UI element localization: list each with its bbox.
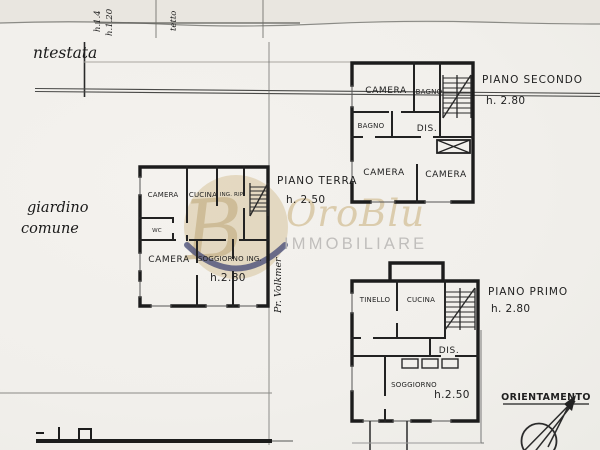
top-note-2: h.1.20: [105, 8, 115, 36]
fixture-box: [402, 359, 418, 368]
room-label-dis: DIS.: [417, 124, 438, 134]
ntestata-note: ntestata: [33, 44, 97, 62]
room-label-camera: CAMERA: [425, 170, 467, 180]
piano-secondo-plan: CAMERA BAGNO BAGNO DIS. CAMERA CAMERA PI…: [352, 63, 583, 202]
room-height-note: h.2.80: [210, 272, 246, 284]
fixture-box: [422, 359, 438, 368]
room-label-bagno: BAGNO: [416, 88, 443, 96]
room-label-soggiorno: SOGGIORNO ING.: [198, 255, 262, 263]
floor-height-piano-terra: h. 2.50: [286, 194, 326, 206]
giardino-note-line2: comune: [21, 221, 79, 237]
floor-height-piano-secondo: h. 2.80: [486, 95, 526, 107]
piano-secondo-shaft-icon: [437, 140, 470, 153]
piano-secondo-stairs-icon: [443, 75, 471, 118]
piano-primo-plan: TINELLO CUCINA DIS. SOGGIORNO h.2.50 PIA…: [352, 263, 568, 450]
room-label-wc: WC: [152, 228, 162, 234]
room-label-cucina: CUCINA: [189, 191, 217, 199]
room-label-camera: CAMERA: [363, 168, 405, 178]
floor-title-piano-primo: PIANO PRIMO: [488, 286, 568, 298]
orientation-compass: ORIENTAMENTO: [501, 392, 591, 450]
bottom-wall-stubs: [36, 427, 59, 441]
giardino-note-line1: giardino: [27, 200, 89, 216]
room-label-bagno: BAGNO: [358, 122, 385, 130]
scan-top-band: [0, 0, 600, 23]
piano-primo-balcony-lines: [370, 421, 407, 450]
fixture-box: [442, 359, 458, 368]
room-label-tinello: TINELLO: [359, 296, 391, 304]
floor-title-piano-secondo: PIANO SECONDO: [482, 74, 583, 86]
room-height-note: h.2.50: [434, 389, 470, 401]
top-note-1: h.1.4: [93, 10, 103, 32]
room-label-soggiorno: SOGGIORNO: [391, 381, 437, 389]
room-label-dis: DIS.: [439, 346, 460, 356]
piano-primo-stairs-icon: [445, 288, 475, 330]
top-note-3: tetto: [169, 11, 179, 31]
room-label-camera: CAMERA: [365, 86, 407, 96]
shaft-cross: [437, 140, 470, 153]
room-label-camera: CAMERA: [148, 191, 179, 199]
piano-secondo-partitions: [352, 63, 473, 202]
piano-secondo-exterior-walls: [352, 63, 473, 202]
piano-primo-fixtures: [402, 359, 458, 368]
floor-title-piano-terra: PIANO TERRA: [277, 175, 357, 187]
floor-height-piano-primo: h. 2.80: [491, 303, 531, 315]
room-label-cucina: CUCINA: [407, 296, 435, 304]
room-label-ing-rip: ING. RIP.: [220, 192, 245, 198]
room-label-camera: CAMERA: [148, 255, 190, 265]
floorplan-scan-canvas: B OroBlu IMMOBILIARE ntestata giardino c…: [0, 0, 600, 450]
scanned-floorplan-sheet: B OroBlu IMMOBILIARE ntestata giardino c…: [0, 0, 600, 450]
orientamento-label: ORIENTAMENTO: [501, 392, 591, 403]
watermark-brand-sub: IMMOBILIARE: [284, 235, 427, 253]
volkmer-note: Pr. Volkmer: [273, 256, 284, 314]
